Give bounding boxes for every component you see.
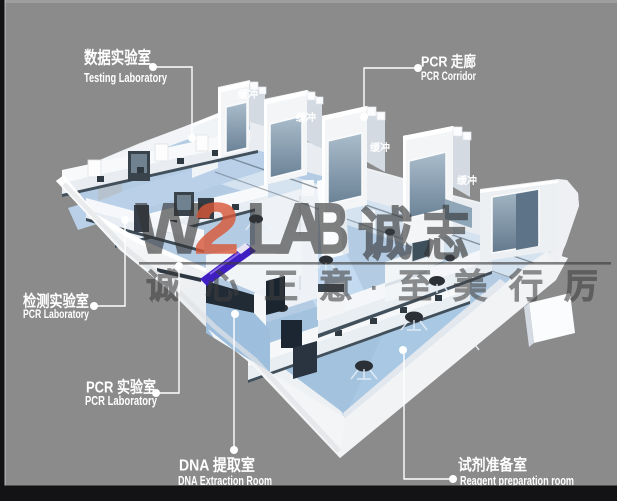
svg-text:PCR Corridor: PCR Corridor — [421, 69, 476, 83]
svg-text:试剂准备室: 试剂准备室 — [458, 455, 527, 474]
svg-text:美: 美 — [453, 268, 487, 306]
svg-text:厉: 厉 — [564, 268, 598, 306]
svg-text:W: W — [136, 190, 203, 269]
svg-text:意: 意 — [319, 268, 353, 306]
svg-text:诚: 诚 — [146, 268, 180, 306]
svg-text:PCR Laboratory: PCR Laboratory — [23, 307, 89, 321]
svg-text:缓冲: 缓冲 — [456, 174, 477, 187]
svg-text:缓冲: 缓冲 — [295, 111, 316, 124]
svg-text:2: 2 — [194, 190, 239, 269]
svg-text:行: 行 — [509, 268, 543, 306]
svg-text:缓冲: 缓冲 — [237, 88, 258, 101]
svg-text:B: B — [312, 190, 349, 269]
svg-text:缓冲: 缓冲 — [369, 141, 390, 154]
svg-text:数据实验室: 数据实验室 — [84, 48, 151, 68]
svg-text:心: 心 — [205, 268, 239, 306]
svg-text:正: 正 — [264, 268, 298, 306]
svg-text:Testing Laboratory: Testing Laboratory — [84, 70, 168, 85]
svg-text:·: · — [371, 278, 378, 300]
svg-text:至: 至 — [398, 268, 432, 306]
svg-text:志: 志 — [423, 203, 469, 266]
svg-text:诚: 诚 — [358, 203, 412, 266]
svg-text:DNA 提取室: DNA 提取室 — [179, 456, 255, 475]
svg-text:PCR Laboratory: PCR Laboratory — [85, 394, 157, 408]
svg-text:PCR 走廊: PCR 走廊 — [421, 53, 476, 71]
